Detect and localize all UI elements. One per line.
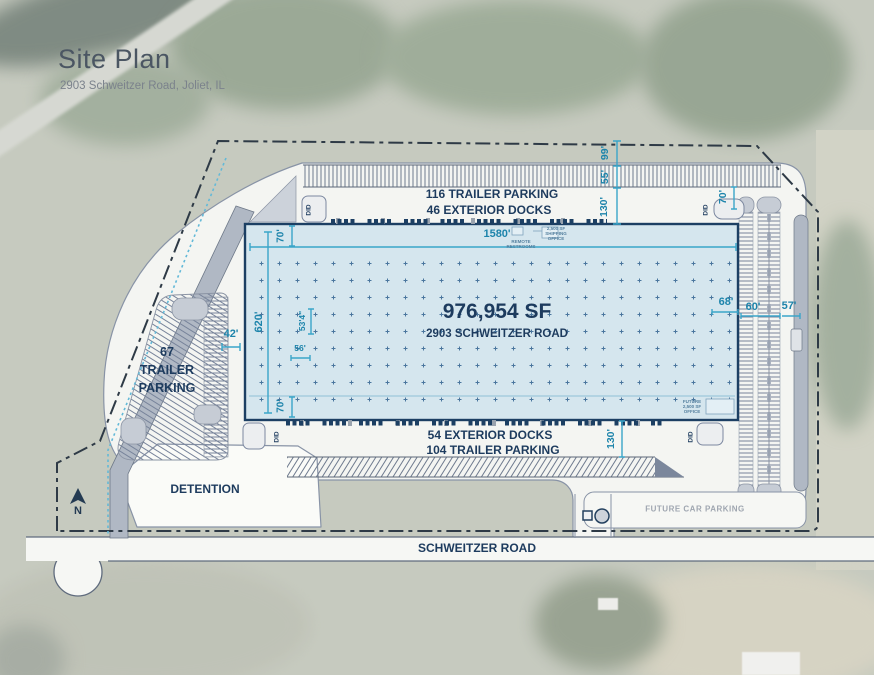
label-south-trailer-parking: 104 TRAILER PARKING [426,443,559,457]
dim-north-trailer-depth: 55' [599,170,611,184]
site-plan-page: Site Plan 2903 Schweitzer Road, Joliet, … [0,0,874,675]
dim-column-bay-width: 56' [294,343,305,353]
dim-south-speed-bay: 70' [276,399,287,413]
dim-east-drive-width: 57' [782,300,797,312]
dim-north-speed-bay: 70' [276,229,287,243]
dim-north-setback: 99' [599,146,611,160]
note-future-office: FUTURE 2,500 SF OFFICE [681,399,703,415]
drive-in-ramp-sw [243,423,265,449]
east-road [794,215,808,491]
dim-north-truck-court: 130' [598,197,610,217]
page-subtitle: 2903 Schweitzer Road, Joliet, IL [60,80,225,92]
dim-building-depth: 620' [253,312,265,333]
label-north-docks: 46 EXTERIOR DOCKS [427,203,552,217]
north-trailer-band [303,165,781,187]
did-tag-ne: DID [703,204,710,215]
east-road-median [791,329,802,351]
north-arrow-icon [70,488,86,504]
did-tag-nw: DID [306,204,313,215]
east-car-parking [738,197,781,498]
dim-south-truck-court: 130' [605,429,617,449]
did-tag-se: DID [688,431,695,442]
building-area: 976,954 SF [443,300,552,324]
label-west-trailer-word1: TRAILER [140,363,194,377]
south-trailer-band [287,457,684,477]
note-remote-restrooms: REMOTE RESTROOMS [506,239,536,249]
dim-column-bay-depth: 53'4" [297,311,307,331]
label-west-trailer-count: 67 [160,345,174,359]
north-marker-label: N [74,505,82,517]
label-future-car-parking: FUTURE CAR PARKING [645,505,745,514]
drive-in-ramp-se [697,423,723,445]
did-tag-sw: DID [274,431,281,442]
dim-east-speed-bay: 68' [719,296,734,308]
dim-east-parking-depth: 60' [746,301,761,313]
label-south-docks: 54 EXTERIOR DOCKS [428,428,553,442]
page-title: Site Plan [58,44,171,75]
note-shipping-office: 2,500 SF SHIPPING OFFICE [543,226,569,242]
dim-northeast-drive: 70' [717,190,729,204]
building-address: 2903 SCHWEITZER ROAD [426,328,568,340]
label-detention: DETENTION [170,482,239,496]
label-west-trailer-word2: PARKING [139,381,196,395]
label-road-name: SCHWEITZER ROAD [418,541,536,555]
label-north-trailer-parking: 116 TRAILER PARKING [426,187,558,201]
dim-west-drive-width: 42' [224,328,239,340]
